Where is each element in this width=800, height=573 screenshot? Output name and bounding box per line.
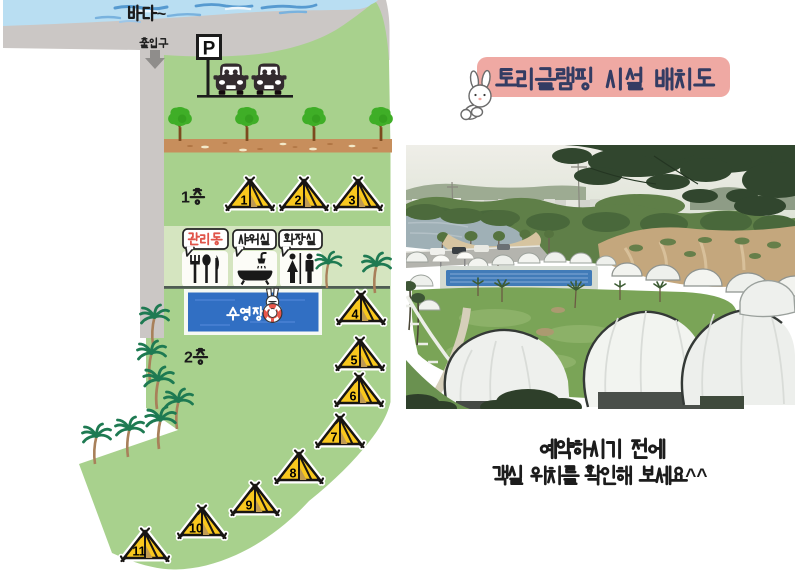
svg-text:~: ~ (157, 6, 166, 23)
svg-text:4: 4 (352, 308, 359, 322)
svg-text:2: 2 (184, 349, 193, 366)
svg-text:2: 2 (295, 194, 302, 208)
svg-text:10: 10 (189, 522, 203, 536)
svg-text:6: 6 (350, 390, 357, 404)
svg-text:11: 11 (132, 545, 145, 559)
svg-text:P: P (203, 39, 216, 60)
svg-text:5: 5 (351, 354, 358, 368)
svg-text:7: 7 (331, 431, 338, 445)
svg-text:^: ^ (696, 466, 707, 487)
svg-text:9: 9 (246, 499, 253, 513)
svg-text:^: ^ (685, 466, 696, 487)
svg-text:1: 1 (181, 189, 190, 206)
svg-text:8: 8 (290, 467, 297, 481)
svg-text:3: 3 (349, 194, 356, 208)
svg-text:1: 1 (241, 194, 248, 208)
